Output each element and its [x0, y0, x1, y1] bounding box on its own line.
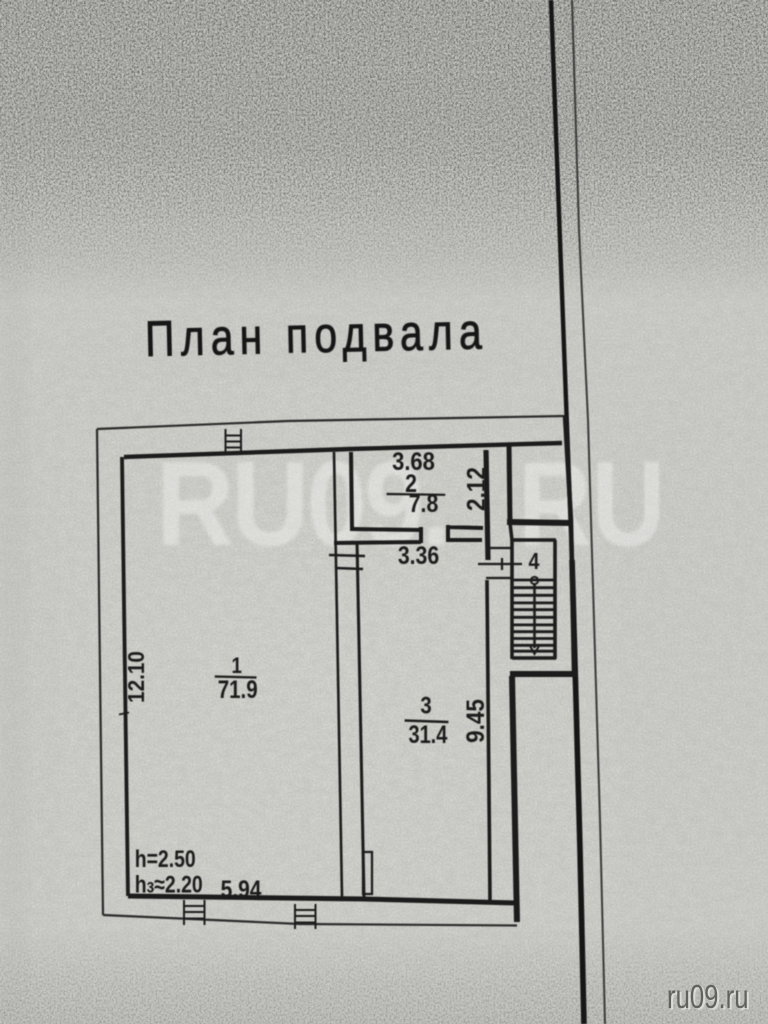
svg-text:71.9: 71.9: [218, 675, 258, 703]
svg-text:3: 3: [420, 692, 431, 719]
svg-text:12.10: 12.10: [123, 651, 149, 703]
svg-text:5.94: 5.94: [221, 875, 262, 903]
svg-text:План подвала: План подвала: [144, 303, 488, 367]
svg-text:9.45: 9.45: [462, 699, 490, 743]
svg-text:31.4: 31.4: [408, 721, 447, 749]
svg-text:ru09.ru: ru09.ru: [667, 979, 749, 1016]
svg-text:7.8: 7.8: [409, 489, 439, 517]
svg-text:4: 4: [529, 549, 540, 575]
svg-text:h=2.50: h=2.50: [135, 845, 196, 872]
svg-text:2.12: 2.12: [463, 467, 492, 511]
svg-text:3.36: 3.36: [398, 541, 439, 569]
svg-text:hз≈2.20: hз≈2.20: [135, 870, 203, 897]
